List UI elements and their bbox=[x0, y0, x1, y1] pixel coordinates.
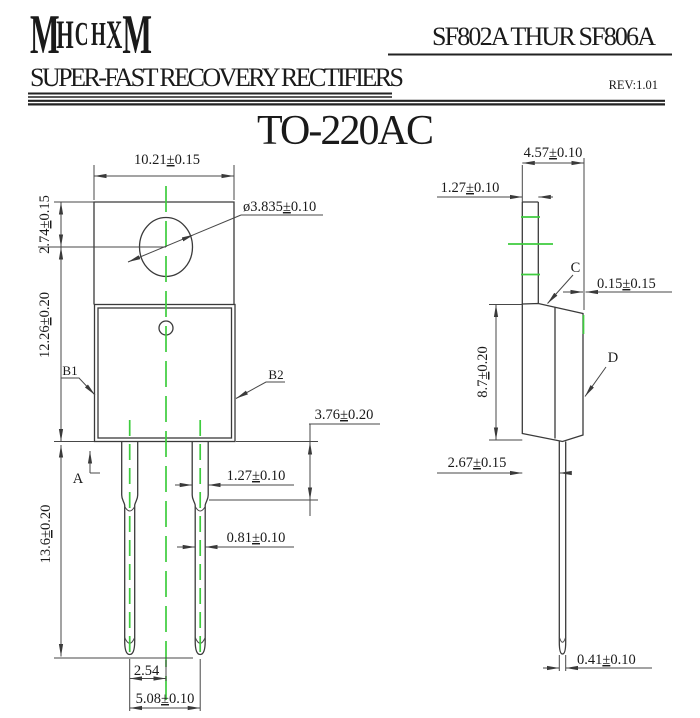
side-lead-tip-arc bbox=[559, 637, 565, 642]
page-subtitle: SUPER-FAST RECOVERY RECTIFIERS bbox=[30, 63, 404, 92]
label-d: D bbox=[608, 350, 618, 366]
dim-body-depth: 8.7±0.20 bbox=[475, 346, 491, 397]
dim-tab-top-to-hole: 2.74±0.15 bbox=[37, 195, 53, 254]
body-outer bbox=[95, 305, 236, 442]
dim-lead-pitch: 5.08±0.10 bbox=[136, 691, 195, 707]
dim-lead-width-lower: 0.81±0.10 bbox=[227, 530, 286, 546]
front-view: 10.21±0.15 ø3.835±0.10 2.74±0.15 12.26±0… bbox=[37, 152, 380, 711]
front-centerlines bbox=[130, 186, 201, 700]
datum-a-label: A bbox=[73, 471, 84, 487]
dim-lead-thickness: 0.41±0.10 bbox=[577, 652, 636, 668]
header: M H C H X M SF802A THUR SF806A SUPER-FAS… bbox=[28, 4, 672, 105]
front-outline bbox=[94, 202, 235, 655]
header-rules bbox=[28, 94, 665, 105]
logo-letter: X bbox=[106, 13, 123, 57]
dim-edge-step: 0.15±0.15 bbox=[597, 276, 656, 292]
dim-shoulder-height: 3.76±0.20 bbox=[315, 407, 374, 423]
label-c: C bbox=[571, 260, 581, 276]
side-body bbox=[522, 304, 583, 442]
part-range-title: SF802A THUR SF806A bbox=[432, 22, 656, 51]
dim-overall-depth: 4.57±0.10 bbox=[524, 145, 583, 161]
package-title: TO-220AC bbox=[257, 108, 434, 154]
dim-lead-length: 13.6±0.20 bbox=[38, 505, 54, 564]
dim-lead-center-offset: 2.54 bbox=[134, 663, 160, 679]
logo-letter: C bbox=[75, 14, 89, 52]
side-view: 4.57±0.10 1.27±0.10 0.15±0.15 8.7±0.20 2… bbox=[437, 145, 672, 671]
logo-letter: M bbox=[122, 4, 152, 66]
logo-letter: M bbox=[30, 4, 60, 66]
revision-label: REV:1.01 bbox=[609, 78, 658, 92]
dim-tab-thickness: 1.27±0.10 bbox=[441, 180, 500, 196]
logo-letter: H bbox=[56, 13, 73, 57]
terminal-b2-label: B2 bbox=[268, 367, 283, 382]
dim-hole-diameter: ø3.835±0.10 bbox=[243, 199, 316, 215]
datasheet-page: M H C H X M SF802A THUR SF806A SUPER-FAS… bbox=[0, 0, 700, 718]
to220ac-package-drawing: M H C H X M SF802A THUR SF806A SUPER-FAS… bbox=[0, 0, 700, 718]
logo-letter: H bbox=[91, 14, 106, 52]
dim-lead-setback: 2.67±0.15 bbox=[448, 455, 507, 471]
dim-hole-to-body-bottom: 12.26±0.20 bbox=[37, 292, 53, 358]
terminal-b1-label: B1 bbox=[62, 363, 77, 378]
dim-lead-width-upper: 1.27±0.10 bbox=[227, 468, 286, 484]
body-inner bbox=[98, 308, 232, 438]
dim-tab-width: 10.21±0.15 bbox=[134, 152, 200, 168]
brand-logo: M H C H X M bbox=[30, 4, 152, 66]
